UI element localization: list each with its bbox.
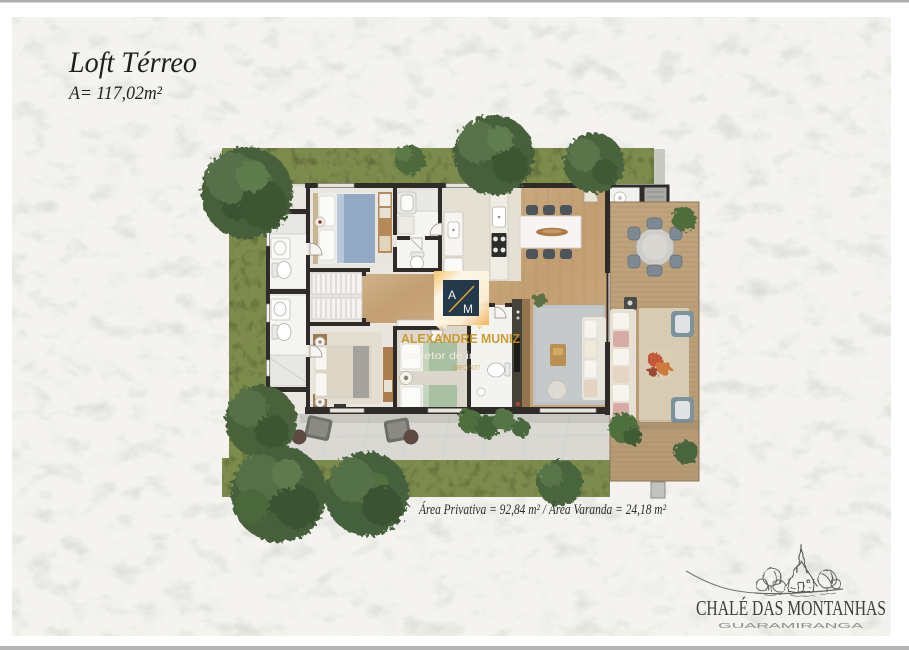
svg-text:Loft Térreo: Loft Térreo (68, 46, 197, 79)
svg-text:CRECI 5077: CRECI 5077 (453, 363, 480, 372)
svg-text:M: M (463, 302, 473, 316)
svg-text:GUARAMIRANGA: GUARAMIRANGA (718, 621, 863, 630)
svg-text:Área Privativa = 92,84 m² / Ár: Área Privativa = 92,84 m² / Área Varanda… (418, 501, 666, 518)
svg-text:A= 117,02m²: A= 117,02m² (67, 83, 162, 104)
svg-text:CHALÉ DAS MONTANHAS: CHALÉ DAS MONTANHAS (696, 596, 886, 620)
svg-text:A: A (448, 288, 456, 302)
svg-text:ALEXANDRE MUNIZ: ALEXANDRE MUNIZ (401, 331, 520, 346)
svg-text:corretor de imóveis: corretor de imóveis (403, 350, 508, 362)
